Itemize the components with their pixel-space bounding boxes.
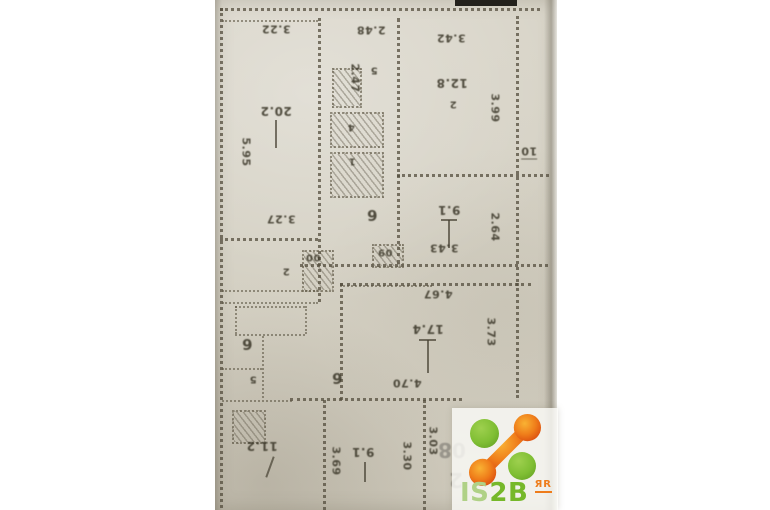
dim-label: 2.48 — [356, 24, 385, 37]
room-number: 00 — [306, 252, 321, 263]
area-label-lower: 9.1 — [352, 445, 375, 459]
leader-line — [265, 456, 274, 477]
wall — [305, 306, 307, 334]
screenshot-root: 3.22 2.48 3.42 20.2 5.95 3.27 2.47 5 4 1… — [0, 0, 770, 510]
leader-line — [275, 120, 277, 148]
area-label-mid: 9.1 — [438, 203, 461, 217]
hatch-zone — [330, 112, 384, 148]
wall — [323, 400, 326, 510]
area-label-bedroom: 12.8 — [436, 76, 468, 90]
dim-label: 2.64 — [489, 212, 502, 241]
wall — [222, 400, 292, 402]
room-number: 2 — [449, 99, 456, 110]
solid-wall-bar — [455, 0, 517, 6]
dim-label: 3.22 — [261, 23, 290, 36]
dim-label: 4.70 — [392, 377, 421, 390]
wall — [220, 8, 540, 11]
area-label-hall: 17.4 — [412, 322, 444, 336]
wall — [222, 302, 318, 304]
room-number: 1 — [348, 156, 355, 167]
watermark-wordmark: IS2B — [460, 480, 528, 506]
wall — [397, 18, 400, 264]
room-number: 6 — [332, 369, 343, 387]
hatch-zone — [330, 152, 384, 198]
floor-number: 10 — [521, 145, 537, 160]
page-edge-shadow — [215, 0, 222, 510]
wall — [300, 264, 548, 267]
wall — [397, 174, 549, 177]
leader-line — [427, 340, 429, 373]
area-label-living: 20.2 — [260, 104, 292, 118]
room-number: 5 — [249, 374, 256, 385]
wall — [222, 368, 262, 370]
wall — [262, 336, 264, 398]
leader-line — [364, 462, 366, 482]
room-number: 09 — [378, 247, 393, 258]
dim-label: 4.67 — [423, 288, 452, 301]
wall — [516, 16, 519, 282]
wall — [235, 306, 237, 334]
room-number: 6 — [367, 206, 378, 224]
dim-label: 3.30 — [401, 441, 414, 470]
room-number: 5 — [370, 65, 377, 76]
dim-label: 3.73 — [485, 317, 498, 346]
wall — [220, 238, 318, 241]
room-number: 6 — [242, 335, 253, 353]
area-label-corner: 11.2 — [246, 439, 278, 453]
green-dot-icon — [508, 452, 536, 480]
green-dot-icon — [470, 419, 499, 448]
wall — [340, 283, 531, 286]
dim-label: 5.95 — [240, 137, 253, 166]
wall — [516, 283, 519, 398]
room-number: 2 — [282, 266, 289, 277]
leader-line — [419, 339, 436, 341]
watermark-badge: ЯR — [535, 479, 552, 493]
wordmark-prefix: IS — [460, 478, 489, 508]
leader-line — [441, 219, 457, 221]
area-label-kitchen: 2.47 — [349, 63, 362, 92]
room-number: 4 — [347, 122, 354, 133]
watermark-logo: IS2B ЯR — [452, 408, 558, 510]
wall — [235, 306, 305, 308]
dim-label: 3.69 — [330, 446, 343, 475]
dim-label: 3.42 — [436, 32, 465, 45]
wall — [290, 398, 462, 401]
floorplan-scan: 3.22 2.48 3.42 20.2 5.95 3.27 2.47 5 4 1… — [215, 0, 557, 510]
dim-label: 3.99 — [489, 93, 502, 122]
wordmark-suffix: 2B — [489, 478, 528, 508]
dim-label: 3.43 — [429, 242, 458, 255]
dim-label: 3.27 — [266, 213, 295, 226]
